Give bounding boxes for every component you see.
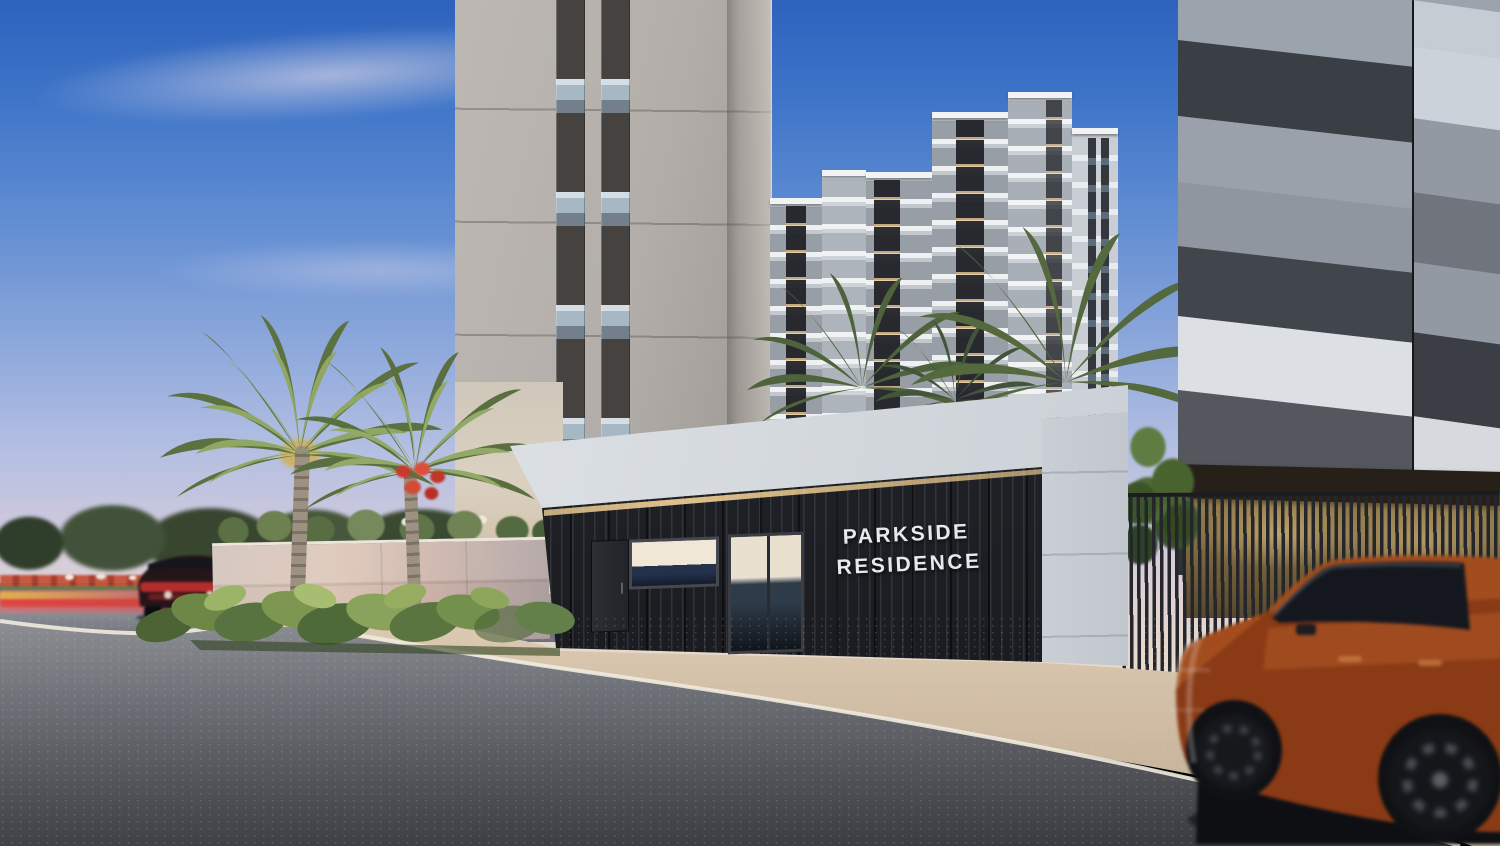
architectural-render-scene: PARKSIDE RESIDENCE xyxy=(0,0,1500,846)
orange-suv-foreground xyxy=(1168,538,1500,846)
